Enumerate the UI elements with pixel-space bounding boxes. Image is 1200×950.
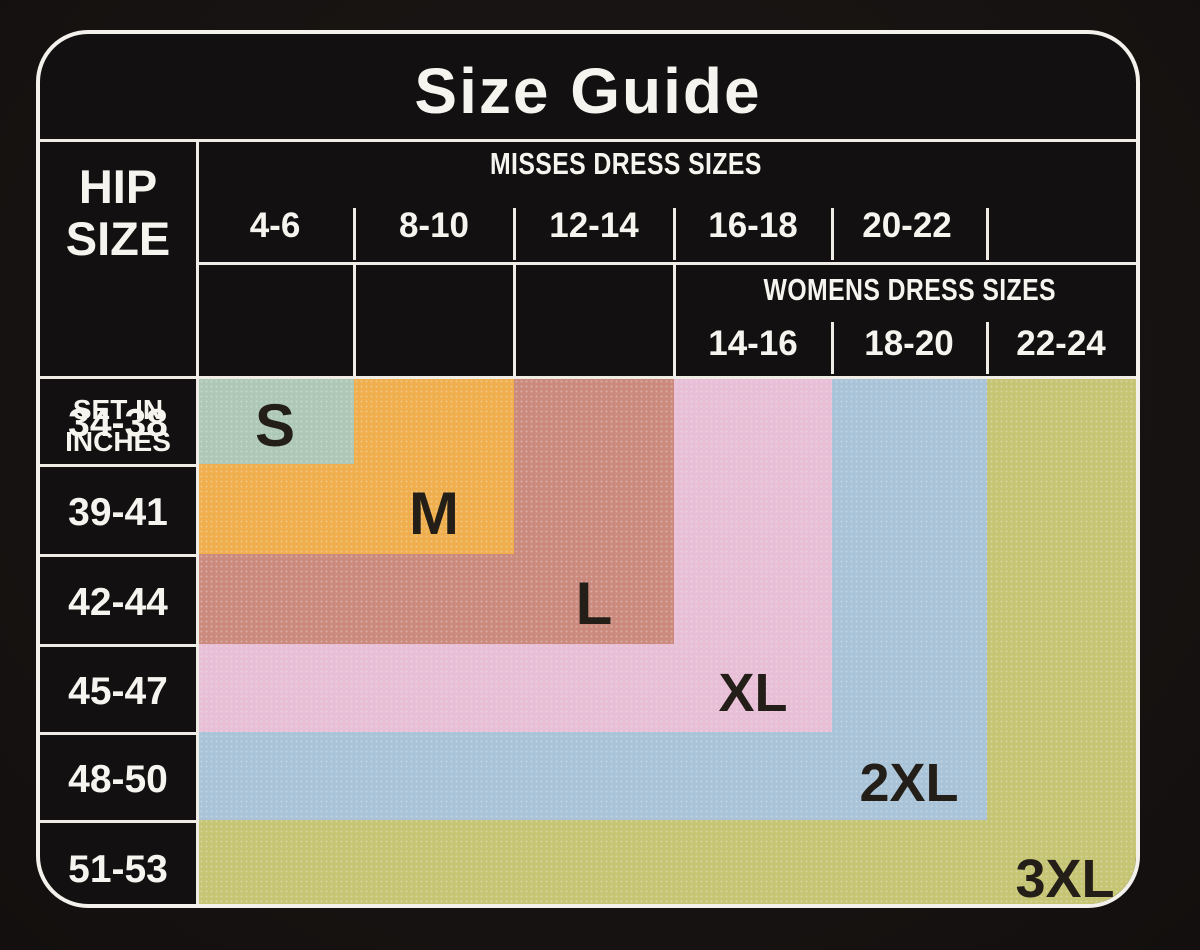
misses-header: MISSES DRESS SIZES bbox=[196, 146, 1056, 182]
womens-size-18-20: 18-20 bbox=[834, 324, 984, 364]
womens-header-text: WOMENS DRESS SIZES bbox=[764, 272, 1056, 308]
hip-range-45-47: 45-47 bbox=[40, 670, 196, 714]
hip-row-divider bbox=[40, 644, 196, 647]
misses-size-20-22: 20-22 bbox=[832, 206, 982, 246]
hip-header-line2: SIZE bbox=[40, 213, 196, 264]
hip-row-divider bbox=[40, 820, 196, 823]
hip-range-39-41: 39-41 bbox=[40, 491, 196, 535]
hip-header-cell: HIP SIZE SET IN INCHES bbox=[40, 139, 196, 376]
size-label-l: L bbox=[519, 574, 669, 634]
size-label-m: M bbox=[359, 484, 509, 544]
empty-cell-divider bbox=[353, 262, 356, 376]
misses-size-separator bbox=[831, 208, 834, 260]
misses-size-8-10: 8-10 bbox=[359, 206, 509, 246]
womens-size-separator bbox=[831, 322, 834, 374]
hip-row-divider bbox=[40, 554, 196, 557]
hip-range-42-44: 42-44 bbox=[40, 581, 196, 625]
misses-size-separator bbox=[673, 208, 676, 260]
hip-range-51-53: 51-53 bbox=[40, 848, 196, 892]
size-label-3xl: 3XL bbox=[990, 852, 1140, 906]
size-label-xl: XL bbox=[678, 666, 828, 720]
womens-size-14-16: 14-16 bbox=[678, 324, 828, 364]
misses-size-16-18: 16-18 bbox=[678, 206, 828, 246]
hip-range-34-38: 34-38 bbox=[40, 402, 196, 446]
title-divider-line bbox=[40, 139, 1140, 142]
size-guide-card: Size Guide HIP SIZE SET IN INCHES MISSES… bbox=[36, 30, 1140, 908]
misses-header-text: MISSES DRESS SIZES bbox=[490, 146, 762, 182]
misses-size-12-14: 12-14 bbox=[519, 206, 669, 246]
misses-size-separator bbox=[513, 208, 516, 260]
hip-row-divider bbox=[40, 732, 196, 735]
size-label-s: S bbox=[200, 396, 350, 456]
empty-cell-divider bbox=[513, 262, 516, 376]
hip-range-48-50: 48-50 bbox=[40, 758, 196, 802]
hip-row-divider bbox=[40, 464, 196, 467]
misses-size-separator bbox=[353, 208, 356, 260]
womens-size-separator bbox=[986, 322, 989, 374]
header-row-divider bbox=[196, 262, 1140, 265]
page-title: Size Guide bbox=[40, 54, 1136, 128]
womens-header: WOMENS DRESS SIZES bbox=[676, 272, 1140, 308]
womens-size-22-24: 22-24 bbox=[986, 324, 1136, 364]
hip-header-line1: HIP bbox=[40, 161, 196, 212]
misses-size-separator bbox=[986, 208, 989, 260]
size-label-2xl: 2XL bbox=[834, 756, 984, 810]
misses-size-4-6: 4-6 bbox=[200, 206, 350, 246]
